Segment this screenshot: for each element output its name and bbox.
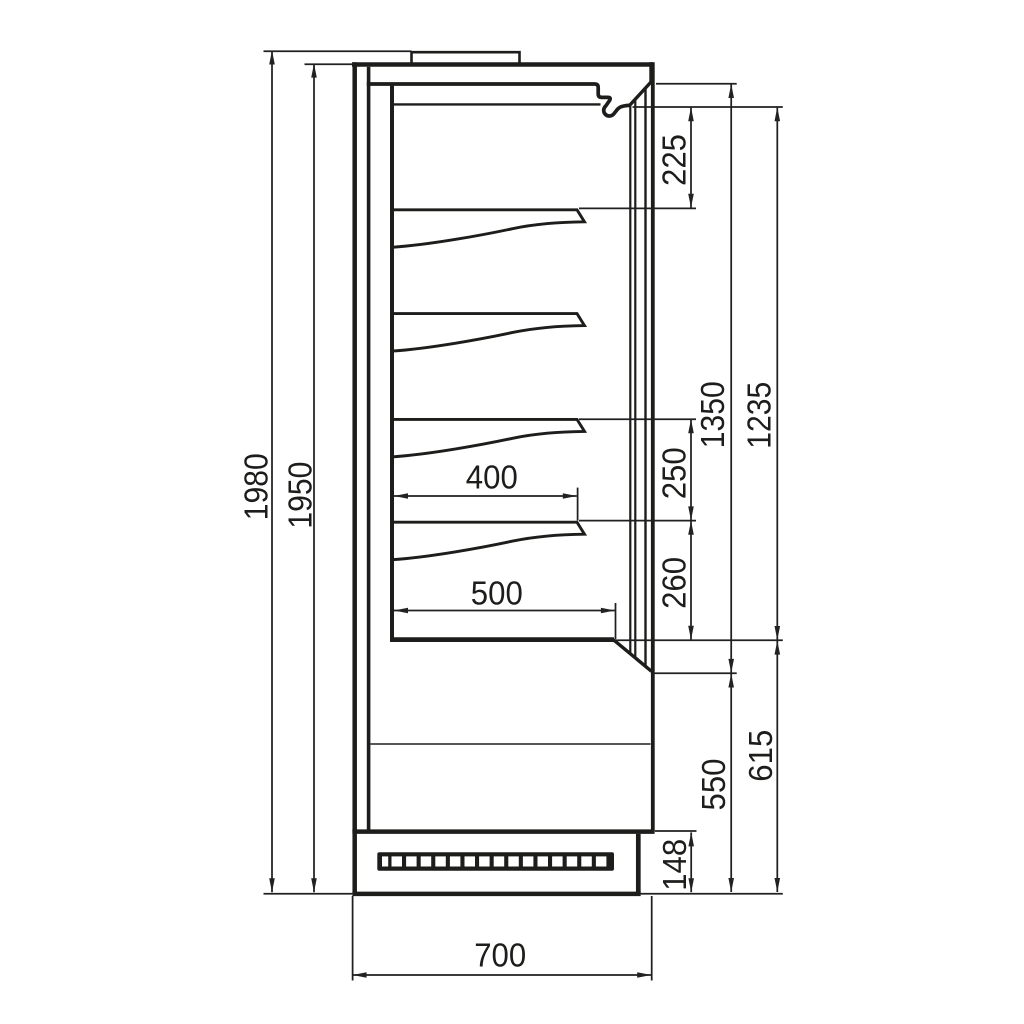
svg-text:700: 700 bbox=[474, 938, 526, 975]
svg-text:615: 615 bbox=[743, 730, 780, 782]
svg-text:1980: 1980 bbox=[238, 453, 275, 520]
svg-text:1235: 1235 bbox=[742, 382, 779, 449]
svg-text:400: 400 bbox=[466, 459, 518, 496]
svg-text:148: 148 bbox=[657, 839, 694, 891]
svg-text:250: 250 bbox=[657, 447, 694, 499]
svg-text:260: 260 bbox=[657, 557, 694, 609]
svg-text:500: 500 bbox=[471, 576, 523, 613]
svg-text:1350: 1350 bbox=[695, 381, 732, 448]
svg-text:225: 225 bbox=[657, 134, 694, 186]
svg-text:1950: 1950 bbox=[282, 462, 319, 529]
svg-text:550: 550 bbox=[696, 759, 733, 811]
